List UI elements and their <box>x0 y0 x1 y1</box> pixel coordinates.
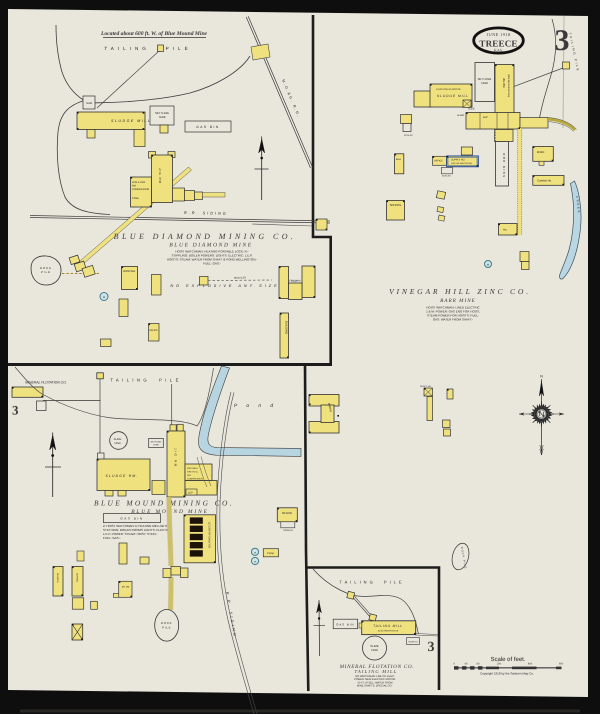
svg-text:ENG RM &: ENG RM & <box>187 467 198 470</box>
svg-text:OFFICE: OFFICE <box>149 329 158 332</box>
svg-text:TANK: TANK <box>371 648 378 652</box>
svg-text:OFFICE: OFFICE <box>282 511 292 515</box>
svg-text:400: 400 <box>528 663 533 666</box>
svg-text:SETTLING: SETTLING <box>151 440 162 443</box>
svg-text:SUPPLY HO.: SUPPLY HO. <box>451 159 465 162</box>
svg-text:BLUE DIAMOND MINE: BLUE DIAMOND MINE <box>169 243 252 249</box>
svg-text:BARR MINE: BARR MINE <box>440 298 476 304</box>
svg-text:Carbide Ho.: Carbide Ho. <box>537 179 552 183</box>
svg-text:Located about 600 ft. W. of Bl: Located about 600 ft. W. of Blue Mound M… <box>100 31 208 37</box>
svg-text:SCHOOL: SCHOOL <box>390 203 402 207</box>
svg-text:Bi Bin: Bi Bin <box>537 150 545 154</box>
svg-text:GAS BIN: GAS BIN <box>336 623 354 627</box>
svg-text:LOAD ON ELEVATION: LOAD ON ELEVATION <box>436 88 461 91</box>
svg-text:PUMP HO: PUMP HO <box>408 640 418 643</box>
svg-text:COMPRESSOR: COMPRESSOR <box>132 188 150 191</box>
svg-text:BLUE MOUND MINING CO.: BLUE MOUND MINING CO. <box>94 499 234 508</box>
svg-text:JIG RM: JIG RM <box>158 168 162 184</box>
svg-text:TANK: TANK <box>158 115 165 119</box>
svg-text:CHURCH: CHURCH <box>56 573 59 583</box>
svg-text:Hoppers: Hoppers <box>289 279 301 283</box>
svg-text:LEP: LEP <box>483 116 488 119</box>
svg-text:JUNE 1918: JUNE 1918 <box>486 32 511 37</box>
svg-text:TANK: TANK <box>114 442 121 445</box>
svg-text:COAL: COAL <box>132 197 140 200</box>
svg-text:ALSO REFER NO W: ALSO REFER NO W <box>378 630 399 633</box>
svg-text:TAILING PILE: TAILING PILE <box>104 46 191 51</box>
svg-text:P o n d: P o n d <box>234 403 277 409</box>
svg-text:SCALES: SCALES <box>404 134 413 137</box>
svg-text:PILE: PILE <box>162 626 171 630</box>
svg-text:HOISTING: HOISTING <box>123 270 136 273</box>
svg-text:ORE BINS: ORE BINS <box>502 153 506 179</box>
svg-text:PILE: PILE <box>41 270 51 274</box>
svg-text:600: 600 <box>559 663 564 666</box>
svg-text:JIG RM: JIG RM <box>502 78 506 88</box>
svg-text:LEP: LEP <box>188 492 193 495</box>
svg-text:VINEGAR HILL ZINC CO.: VINEGAR HILL ZINC CO. <box>389 287 531 296</box>
svg-text:Pump: Pump <box>267 552 274 555</box>
svg-text:KAS.: KAS. <box>494 48 503 53</box>
svg-text:SCALES: SCALES <box>442 175 451 178</box>
svg-text:TANK: TANK <box>153 443 159 446</box>
svg-text:COMPRESSOR: COMPRESSOR <box>187 478 203 481</box>
svg-text:Barn: Barn <box>396 158 402 161</box>
svg-text:(SEE ON INDICATION): (SEE ON INDICATION) <box>451 162 472 165</box>
svg-text:about 150': about 150' <box>234 277 247 280</box>
svg-text:SLIME: SLIME <box>457 114 465 117</box>
svg-text:JIG RM: JIG RM <box>174 448 178 468</box>
svg-text:Ho.: Ho. <box>503 228 508 232</box>
svg-text:Scale of feet.: Scale of feet. <box>490 656 525 663</box>
svg-text:SLIDE: SLIDE <box>468 108 475 111</box>
svg-text:TAILING MILL: TAILING MILL <box>354 669 397 674</box>
svg-text:N: N <box>540 375 543 379</box>
svg-text:TAILING MILL: TAILING MILL <box>373 624 403 628</box>
svg-text:OFFICE: OFFICE <box>434 160 443 163</box>
svg-text:MINERAL FLOTATION CO.: MINERAL FLOTATION CO. <box>25 381 67 385</box>
svg-text:TANK: TANK <box>86 102 93 105</box>
svg-text:BUILDING: BUILDING <box>285 321 289 334</box>
svg-text:GAS BIN: GAS BIN <box>196 125 219 129</box>
svg-text:FUEL: GAS:-: FUEL: GAS:- <box>103 536 121 540</box>
svg-text:3: 3 <box>12 403 19 418</box>
svg-text:SLIME: SLIME <box>114 438 122 441</box>
svg-text:NO EXPLOSIVE ANY SIZE: NO EXPLOSIVE ANY SIZE <box>170 284 279 288</box>
svg-text:SLUDGE MILL: SLUDGE MILL <box>437 94 469 98</box>
svg-text:R.R. SIDING: R.R. SIDING <box>184 211 228 216</box>
svg-text:MY JIM: MY JIM <box>122 586 130 589</box>
svg-text:SHAFT HO: SHAFT HO <box>420 385 431 388</box>
svg-text:GAS BIN: GAS BIN <box>120 517 143 521</box>
svg-text:TANK: TANK <box>481 81 488 85</box>
svg-text:SCALES: SCALES <box>283 529 293 532</box>
svg-text:SCHOOL: SCHOOL <box>76 573 79 583</box>
svg-text:200: 200 <box>497 663 502 666</box>
svg-text:TAILING PILE: TAILING PILE <box>110 378 182 383</box>
svg-text:Copyright 1918 by the Sanborn: Copyright 1918 by the Sanborn Map Co. <box>480 672 534 676</box>
svg-text:ROCK: ROCK <box>161 621 172 625</box>
svg-text:AIR: AIR <box>187 474 191 477</box>
svg-text:MINE SHAFTS: SPECIAL CO:-: MINE SHAFTS: SPECIAL CO:- <box>357 685 393 688</box>
svg-text:3: 3 <box>428 640 435 655</box>
svg-text:BLUE DIAMOND MINING CO.: BLUE DIAMOND MINING CO. <box>114 232 297 241</box>
svg-text:LD CAR RY DAILY RD: LD CAR RY DAILY RD <box>208 522 211 548</box>
svg-text:(ORE BIN ELEVATION): (ORE BIN ELEVATION) <box>507 74 510 97</box>
svg-text:SLUDGE RM.: SLUDGE RM. <box>105 474 138 478</box>
svg-text:3: 3 <box>555 24 570 57</box>
svg-text:TAILING PILE: TAILING PILE <box>339 580 404 585</box>
svg-text:ORE HO &: ORE HO & <box>187 471 198 474</box>
svg-text:FUEL: GAS:-: FUEL: GAS:- <box>203 262 221 266</box>
svg-text:GAS: WATER FROM SHAFT:-: GAS: WATER FROM SHAFT:- <box>433 318 473 322</box>
svg-text:SLUDGE MILL: SLUDGE MILL <box>111 119 151 123</box>
